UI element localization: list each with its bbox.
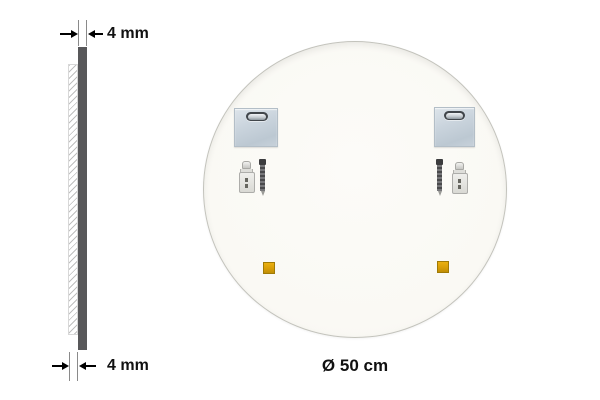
dimension-arrow-left-icon <box>88 30 103 38</box>
diameter-label: Ø 50 cm <box>203 357 507 375</box>
mounting-plate-right <box>434 107 475 147</box>
keyhole-pin <box>248 114 266 120</box>
arrowhead <box>79 362 86 370</box>
dimension-extension-line <box>86 20 87 46</box>
arrowhead <box>62 362 69 370</box>
anchor-cap <box>242 161 251 169</box>
anchor-slit <box>458 185 461 189</box>
adhesive-pad-right <box>437 261 449 273</box>
arrow-shaft <box>94 33 103 35</box>
screw-right <box>436 159 443 196</box>
screw-left <box>259 159 266 196</box>
mirror-backing-hatch <box>68 64 78 335</box>
product-dimension-diagram: 4 mm 4 mm <box>0 0 600 400</box>
anchor-cap <box>455 162 464 170</box>
dimension-extension-line <box>69 352 70 381</box>
screw-thread <box>437 165 442 191</box>
keyhole-pin <box>446 113 463 119</box>
dimension-arrow-right-icon <box>60 30 78 38</box>
thickness-label-bottom: 4 mm <box>107 357 149 375</box>
wall-anchor-left <box>238 161 255 193</box>
screw-thread <box>260 165 265 191</box>
wall-anchor-right <box>451 162 468 194</box>
thickness-label-top: 4 mm <box>107 25 149 43</box>
arrow-shaft <box>85 365 96 367</box>
dimension-arrow-right-icon <box>52 362 69 370</box>
mounting-plate-left <box>234 108 278 147</box>
dimension-extension-line <box>78 20 79 46</box>
arrowhead <box>88 30 95 38</box>
anchor-slit <box>245 184 248 188</box>
dimension-extension-line <box>77 352 78 381</box>
keyhole-slot-icon <box>246 112 268 121</box>
anchor-body <box>452 173 468 194</box>
mirror-glass-edge <box>78 47 87 350</box>
dimension-arrow-left-icon <box>79 362 96 370</box>
anchor-body <box>239 172 255 193</box>
screw-tip <box>261 191 265 196</box>
arrowhead <box>71 30 78 38</box>
anchor-slit <box>458 179 461 183</box>
screw-tip <box>438 191 442 196</box>
anchor-slit <box>245 178 248 182</box>
adhesive-pad-left <box>263 262 275 274</box>
keyhole-slot-icon <box>444 111 465 120</box>
